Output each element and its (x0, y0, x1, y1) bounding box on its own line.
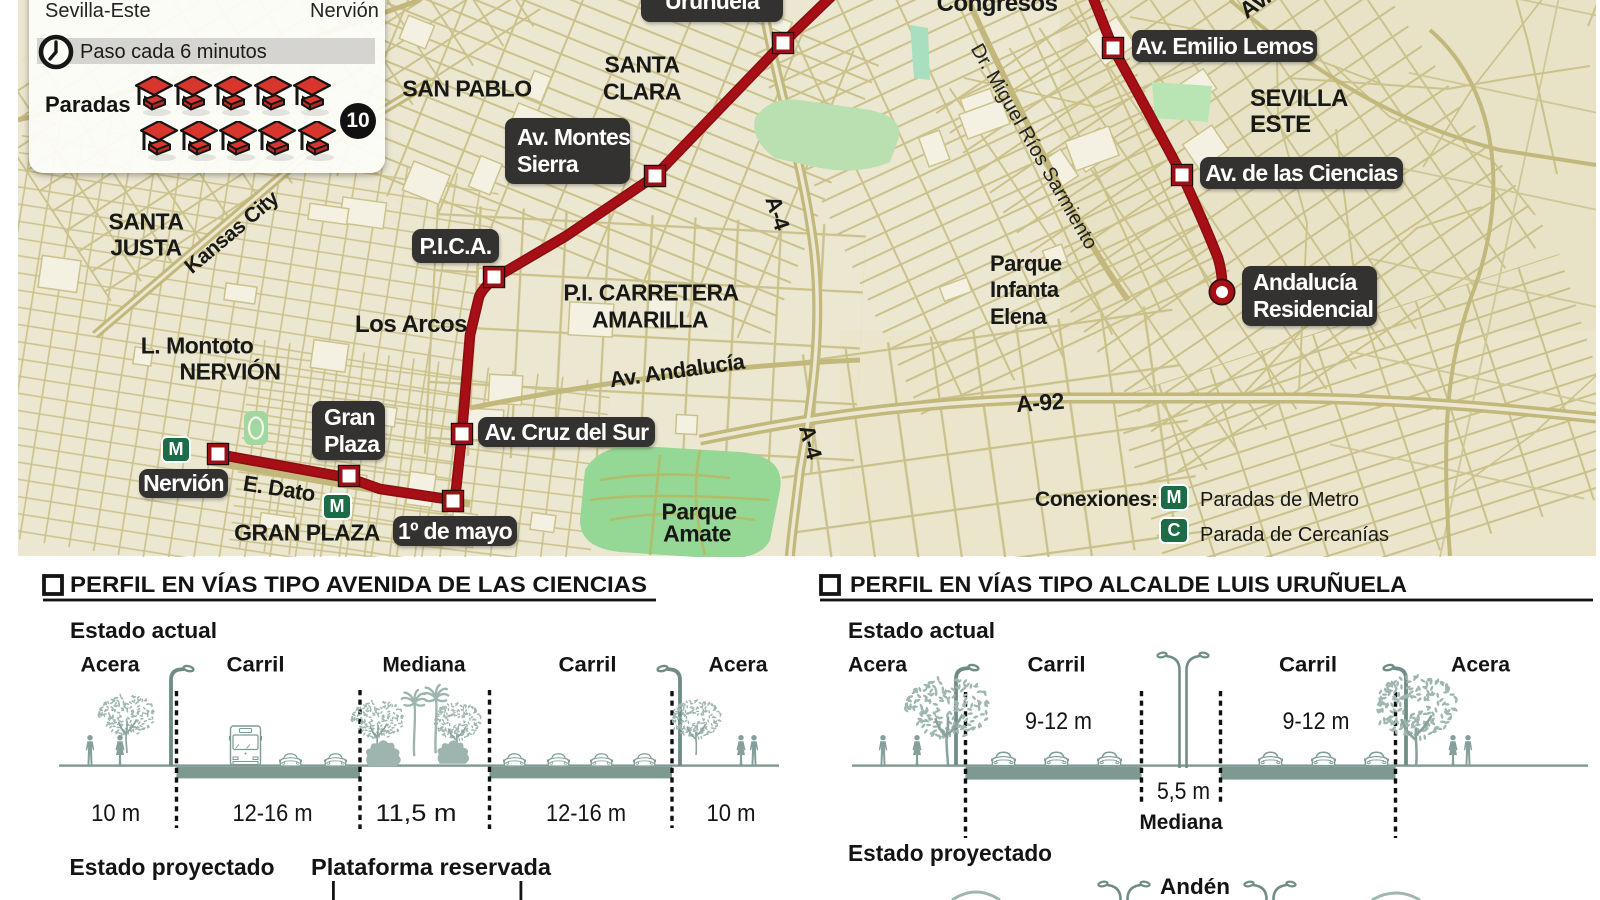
svg-text:Acera: Acera (81, 653, 141, 677)
svg-text:Estado proyectado: Estado proyectado (848, 840, 1052, 866)
svg-text:9-12 m: 9-12 m (1283, 708, 1350, 735)
svg-text:11,5 m: 11,5 m (376, 800, 457, 827)
svg-text:Estado proyectado: Estado proyectado (70, 854, 275, 880)
svg-text:12-16 m: 12-16 m (546, 800, 626, 827)
svg-text:Acera: Acera (1451, 653, 1511, 677)
svg-text:Estado actual: Estado actual (70, 618, 217, 643)
svg-text:Plataforma reservada: Plataforma reservada (311, 854, 551, 880)
svg-text:Mediana: Mediana (1140, 810, 1224, 834)
svg-text:Acera: Acera (709, 653, 769, 677)
svg-text:Carril: Carril (559, 653, 617, 677)
svg-text:12-16 m: 12-16 m (233, 800, 313, 827)
svg-text:Acera: Acera (848, 653, 908, 677)
svg-text:Carril: Carril (227, 653, 285, 677)
svg-text:Carril: Carril (1028, 653, 1086, 677)
svg-text:10 m: 10 m (707, 800, 756, 827)
svg-text:5,5 m: 5,5 m (1157, 778, 1210, 805)
svg-text:PERFIL EN VÍAS TIPO AVENIDA DE: PERFIL EN VÍAS TIPO AVENIDA DE LAS CIENC… (70, 572, 647, 597)
svg-text:Andén: Andén (1160, 874, 1230, 899)
svg-text:PERFIL EN VÍAS TIPO ALCALDE LU: PERFIL EN VÍAS TIPO ALCALDE LUIS URUÑUEL… (850, 572, 1407, 597)
svg-text:Carril: Carril (1279, 653, 1337, 677)
svg-text:10 m: 10 m (91, 800, 140, 827)
svg-text:9-12 m: 9-12 m (1025, 708, 1092, 735)
svg-text:Estado actual: Estado actual (848, 618, 995, 643)
svg-text:Mediana: Mediana (383, 653, 467, 677)
